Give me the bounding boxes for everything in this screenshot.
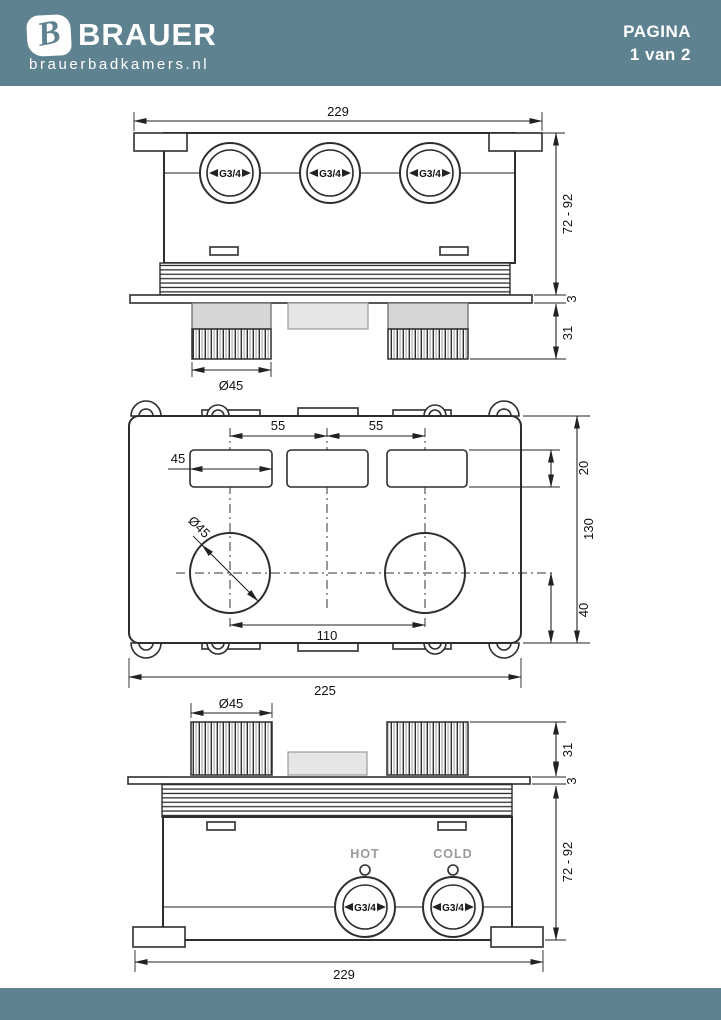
knob-right-knurl xyxy=(388,329,468,359)
technical-drawing-canvas: 229 G3/4 G3/4 G3/4 xyxy=(0,0,721,1020)
header-bar: B BRAUER brauerbadkamers.nl PAGINA 1 van… xyxy=(0,0,721,86)
connection-port-hot: G3/4 xyxy=(335,877,395,937)
logo-letter: B xyxy=(34,13,64,55)
dim-front-depth-range: 72 - 92 xyxy=(560,842,575,882)
drawing-plan-view: 55 55 45 20 Ø45 110 130 xyxy=(129,401,596,698)
connection-size-label: G3/4 xyxy=(219,169,241,180)
hot-indicator-dot xyxy=(360,865,370,875)
connection-port: G3/4 xyxy=(300,143,360,203)
center-cover xyxy=(288,303,368,329)
knob-left-knurl xyxy=(192,329,271,359)
mount-ear-right xyxy=(489,133,542,151)
hot-label: HOT xyxy=(350,847,379,861)
knob-right-body xyxy=(388,303,468,329)
connection-size-label: G3/4 xyxy=(354,903,376,914)
brauer-logo-icon: B xyxy=(26,14,72,57)
dim-knob-spacing: 110 xyxy=(317,628,338,643)
dim-front-plate-thickness: 3 xyxy=(564,777,579,784)
dim-back-depth-range: 72 - 92 xyxy=(560,194,575,234)
fixing-slot xyxy=(440,247,468,255)
function-slot xyxy=(387,450,467,487)
page-value: 1 van 2 xyxy=(623,44,691,67)
fixing-slot xyxy=(438,822,466,830)
brand-title: BRAUER xyxy=(78,17,217,53)
connection-port: G3/4 xyxy=(200,143,260,203)
dim-back-plate-thickness: 3 xyxy=(564,295,579,302)
dim-body-height: 130 xyxy=(581,518,596,540)
center-cover xyxy=(288,752,367,775)
footer-bar xyxy=(0,988,721,1020)
mount-foot-right xyxy=(491,927,543,947)
connection-size-label: G3/4 xyxy=(319,169,341,180)
dim-center-to-edge: 40 xyxy=(576,603,591,617)
function-slot xyxy=(287,450,368,487)
dim-slot-width: 45 xyxy=(171,451,185,466)
connection-size-label: G3/4 xyxy=(442,903,464,914)
cold-indicator-dot xyxy=(448,865,458,875)
fixing-slot xyxy=(210,247,238,255)
wall-plate xyxy=(130,295,532,303)
ribbed-section xyxy=(162,784,512,817)
connection-port-cold: G3/4 xyxy=(423,877,483,937)
mount-foot-left xyxy=(133,927,185,947)
mount-ear-left xyxy=(134,133,187,151)
dim-back-knob-diameter: Ø45 xyxy=(219,378,244,393)
dim-front-knob-diameter: Ø45 xyxy=(219,696,244,711)
page-label: PAGINA xyxy=(623,21,691,44)
ribbed-section xyxy=(160,263,510,295)
dim-back-knob-height: 31 xyxy=(560,326,575,340)
dim-slot-spacing-left: 55 xyxy=(271,418,285,433)
drawing-back-view: 229 G3/4 G3/4 G3/4 xyxy=(130,104,579,393)
dim-body-width: 225 xyxy=(314,683,336,698)
dim-front-overall-width: 229 xyxy=(333,967,355,982)
connection-port: G3/4 xyxy=(400,143,460,203)
spec-sheet-page: 229 G3/4 G3/4 G3/4 xyxy=(0,0,721,1020)
knob-left-body xyxy=(192,303,271,329)
dim-back-overall-width: 229 xyxy=(327,104,349,119)
wall-plate xyxy=(128,777,530,784)
dim-slot-spacing-right: 55 xyxy=(369,418,383,433)
page-indicator: PAGINA 1 van 2 xyxy=(623,21,691,67)
connection-size-label: G3/4 xyxy=(419,169,441,180)
dim-slot-height: 20 xyxy=(576,461,591,475)
fixing-slot xyxy=(207,822,235,830)
cold-label: COLD xyxy=(433,847,472,861)
knob-right-knurl xyxy=(387,722,468,775)
dim-front-knob-height: 31 xyxy=(560,743,575,757)
knob-left-knurl xyxy=(191,722,272,775)
brand-domain: brauerbadkamers.nl xyxy=(29,56,209,73)
drawing-front-view: Ø45 HOT COLD G3/4 xyxy=(128,696,579,982)
